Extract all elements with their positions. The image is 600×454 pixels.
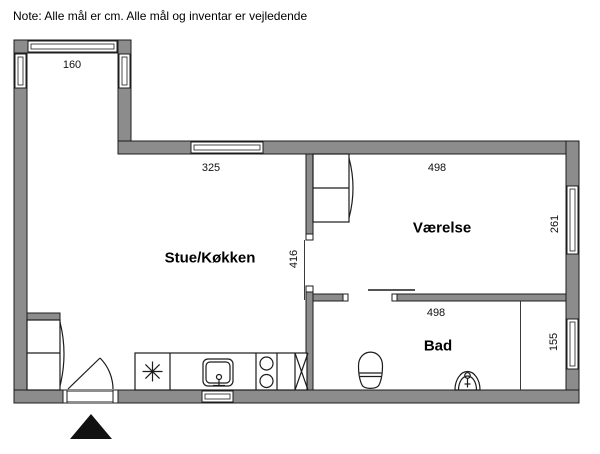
window-entry-right <box>119 54 130 88</box>
entrance-marker <box>70 414 112 439</box>
bathroom-sink-icon <box>455 372 480 391</box>
dimension-kitchen-window-wall: 325 <box>202 162 220 174</box>
dimension-entry-bay: 160 <box>63 59 81 71</box>
toilet-icon <box>359 352 383 388</box>
window-bathroom <box>567 319 578 369</box>
floor-plan: Note: Alle mål er cm. Alle mål og invent… <box>0 0 600 454</box>
floor-plan-svg <box>0 0 600 454</box>
dimension-bedroom-depth: 261 <box>549 215 561 233</box>
dimension-bedroom-width: 498 <box>428 162 446 174</box>
room-label-bedroom: Værelse <box>413 220 471 237</box>
wardrobe-entry-icon <box>27 320 64 390</box>
kitchen-sink-icon <box>203 359 233 386</box>
kitchen-counter <box>135 353 308 390</box>
entrance-door <box>63 358 118 403</box>
window-under-sink <box>202 391 233 402</box>
dimension-bathroom-niche: 155 <box>548 333 560 351</box>
asterisk-symbol <box>143 362 163 382</box>
dimension-living-depth: 416 <box>288 250 300 268</box>
note-text: Note: Alle mål er cm. Alle mål og invent… <box>13 9 307 23</box>
room-label-living-kitchen: Stue/Køkken <box>165 250 256 267</box>
wardrobe-bedroom-icon <box>313 154 353 222</box>
exterior-walls <box>14 40 579 403</box>
dimension-bathroom-width: 498 <box>427 307 445 319</box>
window-entry-left <box>15 54 26 88</box>
window-kitchen <box>191 142 263 153</box>
window-bedroom <box>567 186 578 254</box>
window-entry-top <box>28 41 117 52</box>
room-label-bathroom: Bad <box>424 338 452 355</box>
